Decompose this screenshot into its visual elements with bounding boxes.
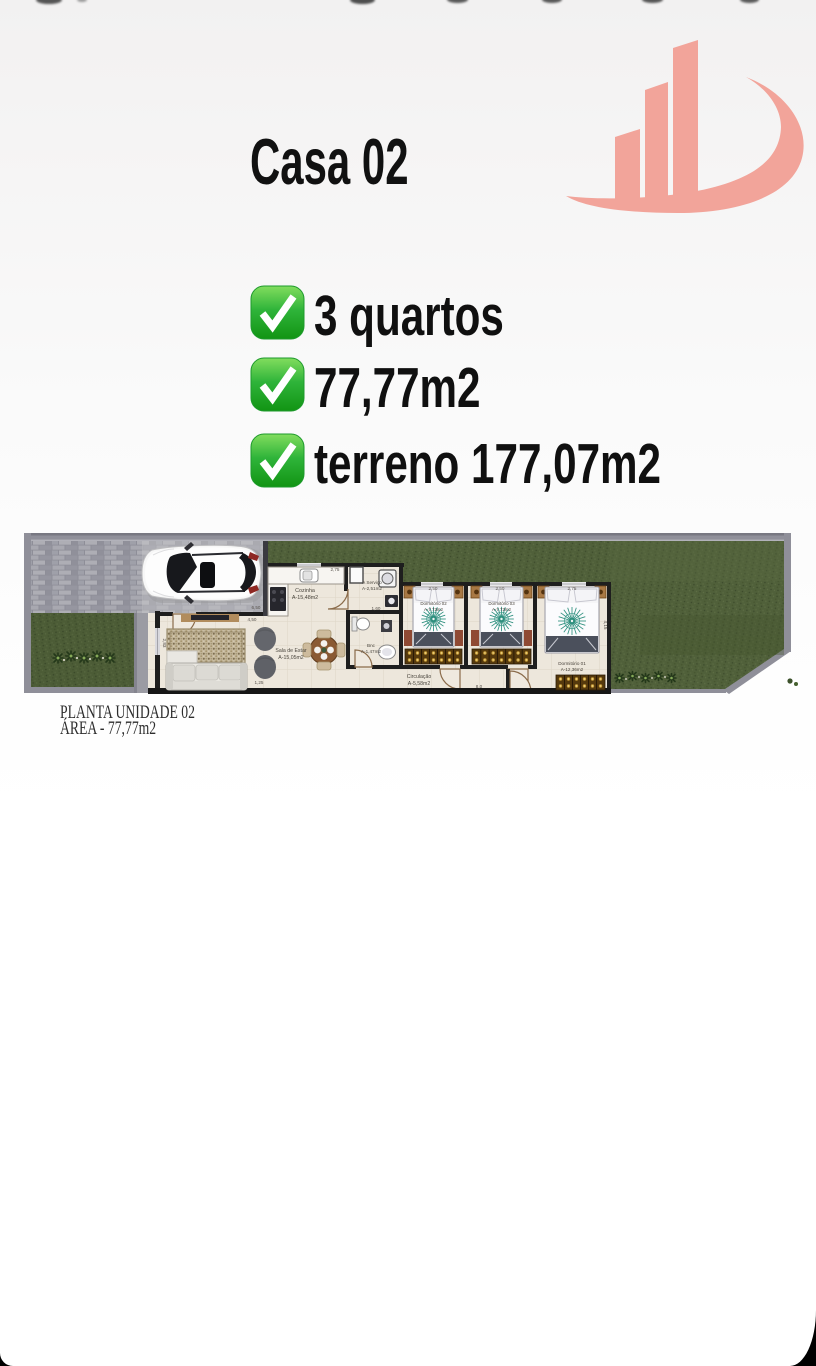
svg-text:Bnc: Bnc: [367, 643, 376, 648]
svg-text:Dormitório 03: Dormitório 03: [488, 601, 515, 606]
svg-text:Dormitório 02: Dormitório 02: [420, 601, 447, 606]
svg-text:2,83: 2,83: [162, 639, 167, 648]
svg-text:Circulação: Circulação: [407, 674, 432, 680]
svg-text:4,50: 4,50: [248, 617, 257, 622]
svg-text:A-12,36m2: A-12,36m2: [561, 667, 584, 672]
svg-text:1,25: 1,25: [255, 680, 264, 685]
svg-text:2,75: 2,75: [568, 586, 577, 591]
svg-text:2,50: 2,50: [496, 586, 505, 591]
svg-text:6,50: 6,50: [252, 605, 261, 610]
svg-text:A-1,47m2: A-1,47m2: [361, 649, 381, 654]
svg-text:A-15,05m2: A-15,05m2: [278, 655, 303, 661]
svg-text:A-5,58m2: A-5,58m2: [408, 681, 431, 687]
svg-text:1,60: 1,60: [372, 606, 381, 611]
svg-text:8,0: 8,0: [476, 684, 483, 689]
svg-text:A-2,51m2: A-2,51m2: [362, 586, 382, 591]
svg-text:4,15: 4,15: [603, 621, 608, 630]
svg-text:A-7,72m2: A-7,72m2: [492, 607, 512, 612]
svg-text:Sala de Estar: Sala de Estar: [275, 648, 306, 654]
svg-text:A Serviço: A Serviço: [362, 580, 382, 585]
svg-text:2,75: 2,75: [331, 567, 340, 572]
svg-text:Dormitório 01: Dormitório 01: [558, 661, 586, 666]
svg-text:2,50: 2,50: [429, 586, 438, 591]
svg-text:A-15,48m2: A-15,48m2: [292, 595, 318, 601]
svg-text:Cozinha: Cozinha: [295, 588, 315, 594]
svg-text:A-7,72m2: A-7,72m2: [424, 607, 444, 612]
